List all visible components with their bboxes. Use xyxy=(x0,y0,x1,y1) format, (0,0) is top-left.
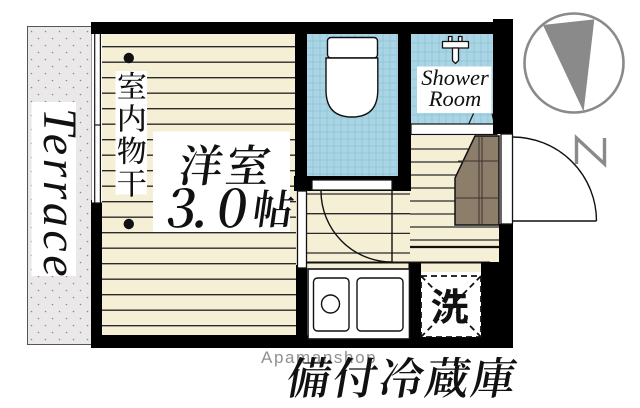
svg-text:Apamanshop: Apamanshop xyxy=(261,348,377,367)
svg-text:Terrace: Terrace xyxy=(33,108,86,280)
svg-text:Room: Room xyxy=(428,86,482,111)
